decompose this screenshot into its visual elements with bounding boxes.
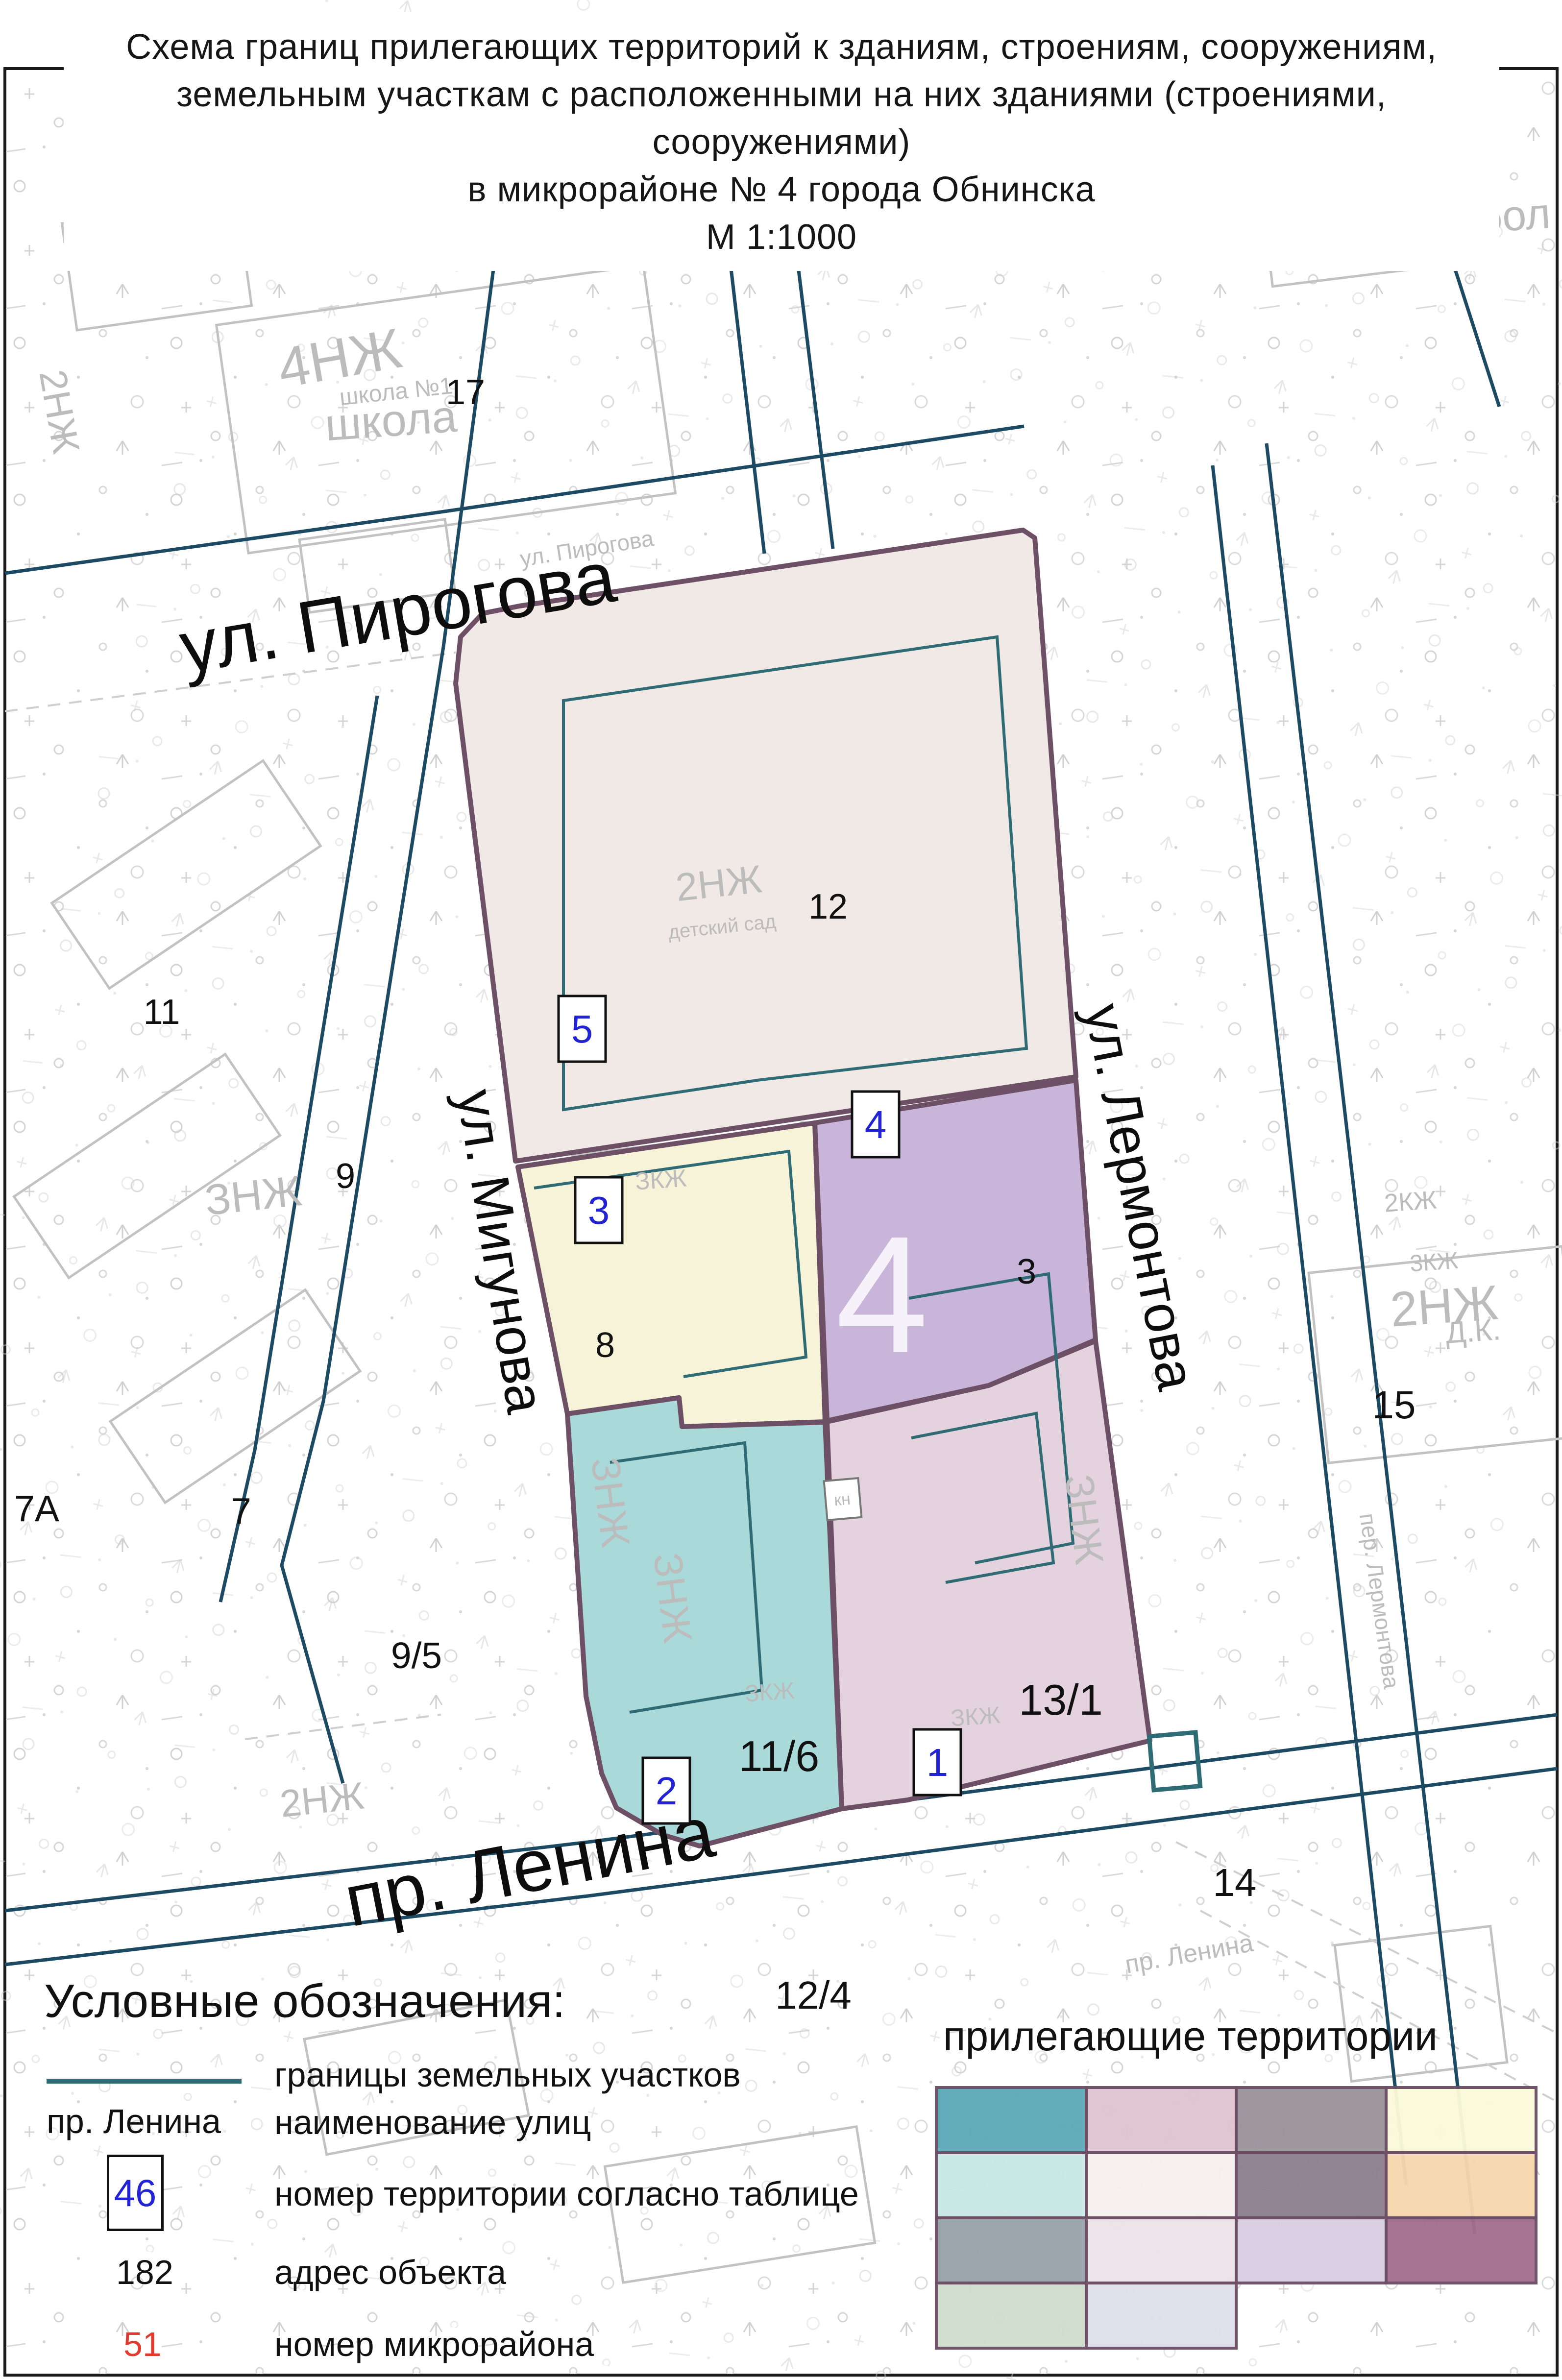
territory-plate-number: 2	[656, 1769, 678, 1813]
map-sheet: 4НЖ школа №1 школа 2НЖ детский сад ЗКЖ З…	[0, 0, 1562, 2380]
swatch-row	[935, 2086, 1538, 2154]
title-scale: М 1:1000	[64, 214, 1499, 261]
title-block: Схема границ прилегающих территорий к зд…	[64, 12, 1499, 271]
color-swatch	[1235, 2086, 1388, 2154]
gray-label: Д.К.	[1444, 1312, 1502, 1350]
swatch-row	[935, 2151, 1538, 2219]
color-swatch	[1385, 2086, 1538, 2154]
address-label: 12	[808, 887, 848, 926]
address-label: 7А	[14, 1488, 59, 1529]
territory-plate-5: 5	[559, 996, 606, 1062]
legend-label-microdistrict: номер микрорайона	[274, 2325, 594, 2364]
address-label: 14	[1213, 1861, 1257, 1904]
gray-label: 2НЖ	[674, 857, 764, 909]
address-label: 9/5	[391, 1635, 442, 1676]
title-line-3: в микрорайоне № 4 города Обнинска	[64, 166, 1499, 214]
gray-label: ЗКЖ	[744, 1678, 796, 1707]
address-label: 7	[231, 1490, 251, 1531]
address-label: 8	[595, 1326, 615, 1365]
legend-label-territory-number: номер территории согласно таблице	[274, 2174, 859, 2213]
color-swatch	[935, 2151, 1088, 2219]
color-swatch	[1235, 2151, 1388, 2219]
legend-territory-number-sample: 46	[114, 2171, 157, 2215]
title-line-1: Схема границ прилегающих территорий к зд…	[64, 24, 1499, 71]
address-label: 15	[1372, 1383, 1416, 1427]
title-line-2: земельным участкам с расположенными на н…	[64, 71, 1499, 166]
legend-microdistrict-sample: 51	[123, 2325, 162, 2364]
legend-street-sample: пр. Ленина	[47, 2102, 221, 2141]
legend-label-street-names: наименование улиц	[274, 2103, 591, 2142]
color-swatch	[1385, 2216, 1538, 2284]
gray-label: 2НЖ	[278, 1773, 366, 1825]
gray-label: ЗКЖ	[634, 1164, 687, 1195]
legend-heading: Условные обозначения:	[44, 1974, 565, 2028]
adjacent-territories-swatch-grid	[935, 2086, 1538, 2350]
color-swatch	[1085, 2216, 1238, 2284]
color-swatch	[1085, 2151, 1238, 2219]
address-label: 13/1	[1019, 1676, 1102, 1724]
territory-plate-4: 4	[852, 1092, 899, 1157]
color-swatch	[1085, 2086, 1238, 2154]
color-swatch	[1235, 2216, 1388, 2284]
adjacent-territories-heading: прилегающие территории	[943, 2013, 1438, 2060]
address-label: 11	[144, 993, 180, 1032]
territory-plate-number: 1	[927, 1741, 949, 1784]
swatch-row	[935, 2216, 1538, 2284]
gray-label: кн	[833, 1490, 852, 1510]
legend-boundary-line-sample	[47, 2079, 242, 2084]
legend-address-sample: 182	[116, 2253, 173, 2292]
territory-plate-number: 4	[865, 1103, 887, 1146]
address-label: 12/4	[775, 1973, 852, 2017]
address-label: 17	[446, 373, 485, 412]
territory-plate-1: 1	[914, 1729, 961, 1795]
address-label: 11/6	[739, 1732, 820, 1780]
color-swatch	[1085, 2282, 1238, 2350]
gray-label: ЗКЖ	[950, 1702, 1001, 1732]
microdistrict-watermark: 4	[835, 1202, 928, 1388]
gray-label: школа	[323, 391, 459, 451]
address-label: 3	[1017, 1252, 1036, 1291]
gray-label: ЗНЖ	[202, 1166, 304, 1224]
gray-label: 3КЖ	[1409, 1248, 1459, 1277]
color-swatch	[935, 2216, 1088, 2284]
legend-label-boundaries: границы земельных участков	[274, 2055, 741, 2094]
swatch-row	[935, 2282, 1538, 2350]
territory-plate-number: 5	[571, 1007, 593, 1051]
territory-plate-number: 3	[588, 1189, 610, 1232]
color-swatch	[935, 2086, 1088, 2154]
legend-label-address: адрес объекта	[274, 2253, 506, 2292]
color-swatch	[935, 2282, 1088, 2350]
gray-label: 2КЖ	[1383, 1186, 1438, 1217]
legend-territory-number-box: 46	[107, 2155, 164, 2231]
territory-plate-3: 3	[575, 1177, 622, 1243]
address-label: 9	[336, 1157, 355, 1196]
color-swatch	[1385, 2151, 1538, 2219]
territory-plate-2: 2	[643, 1758, 690, 1823]
